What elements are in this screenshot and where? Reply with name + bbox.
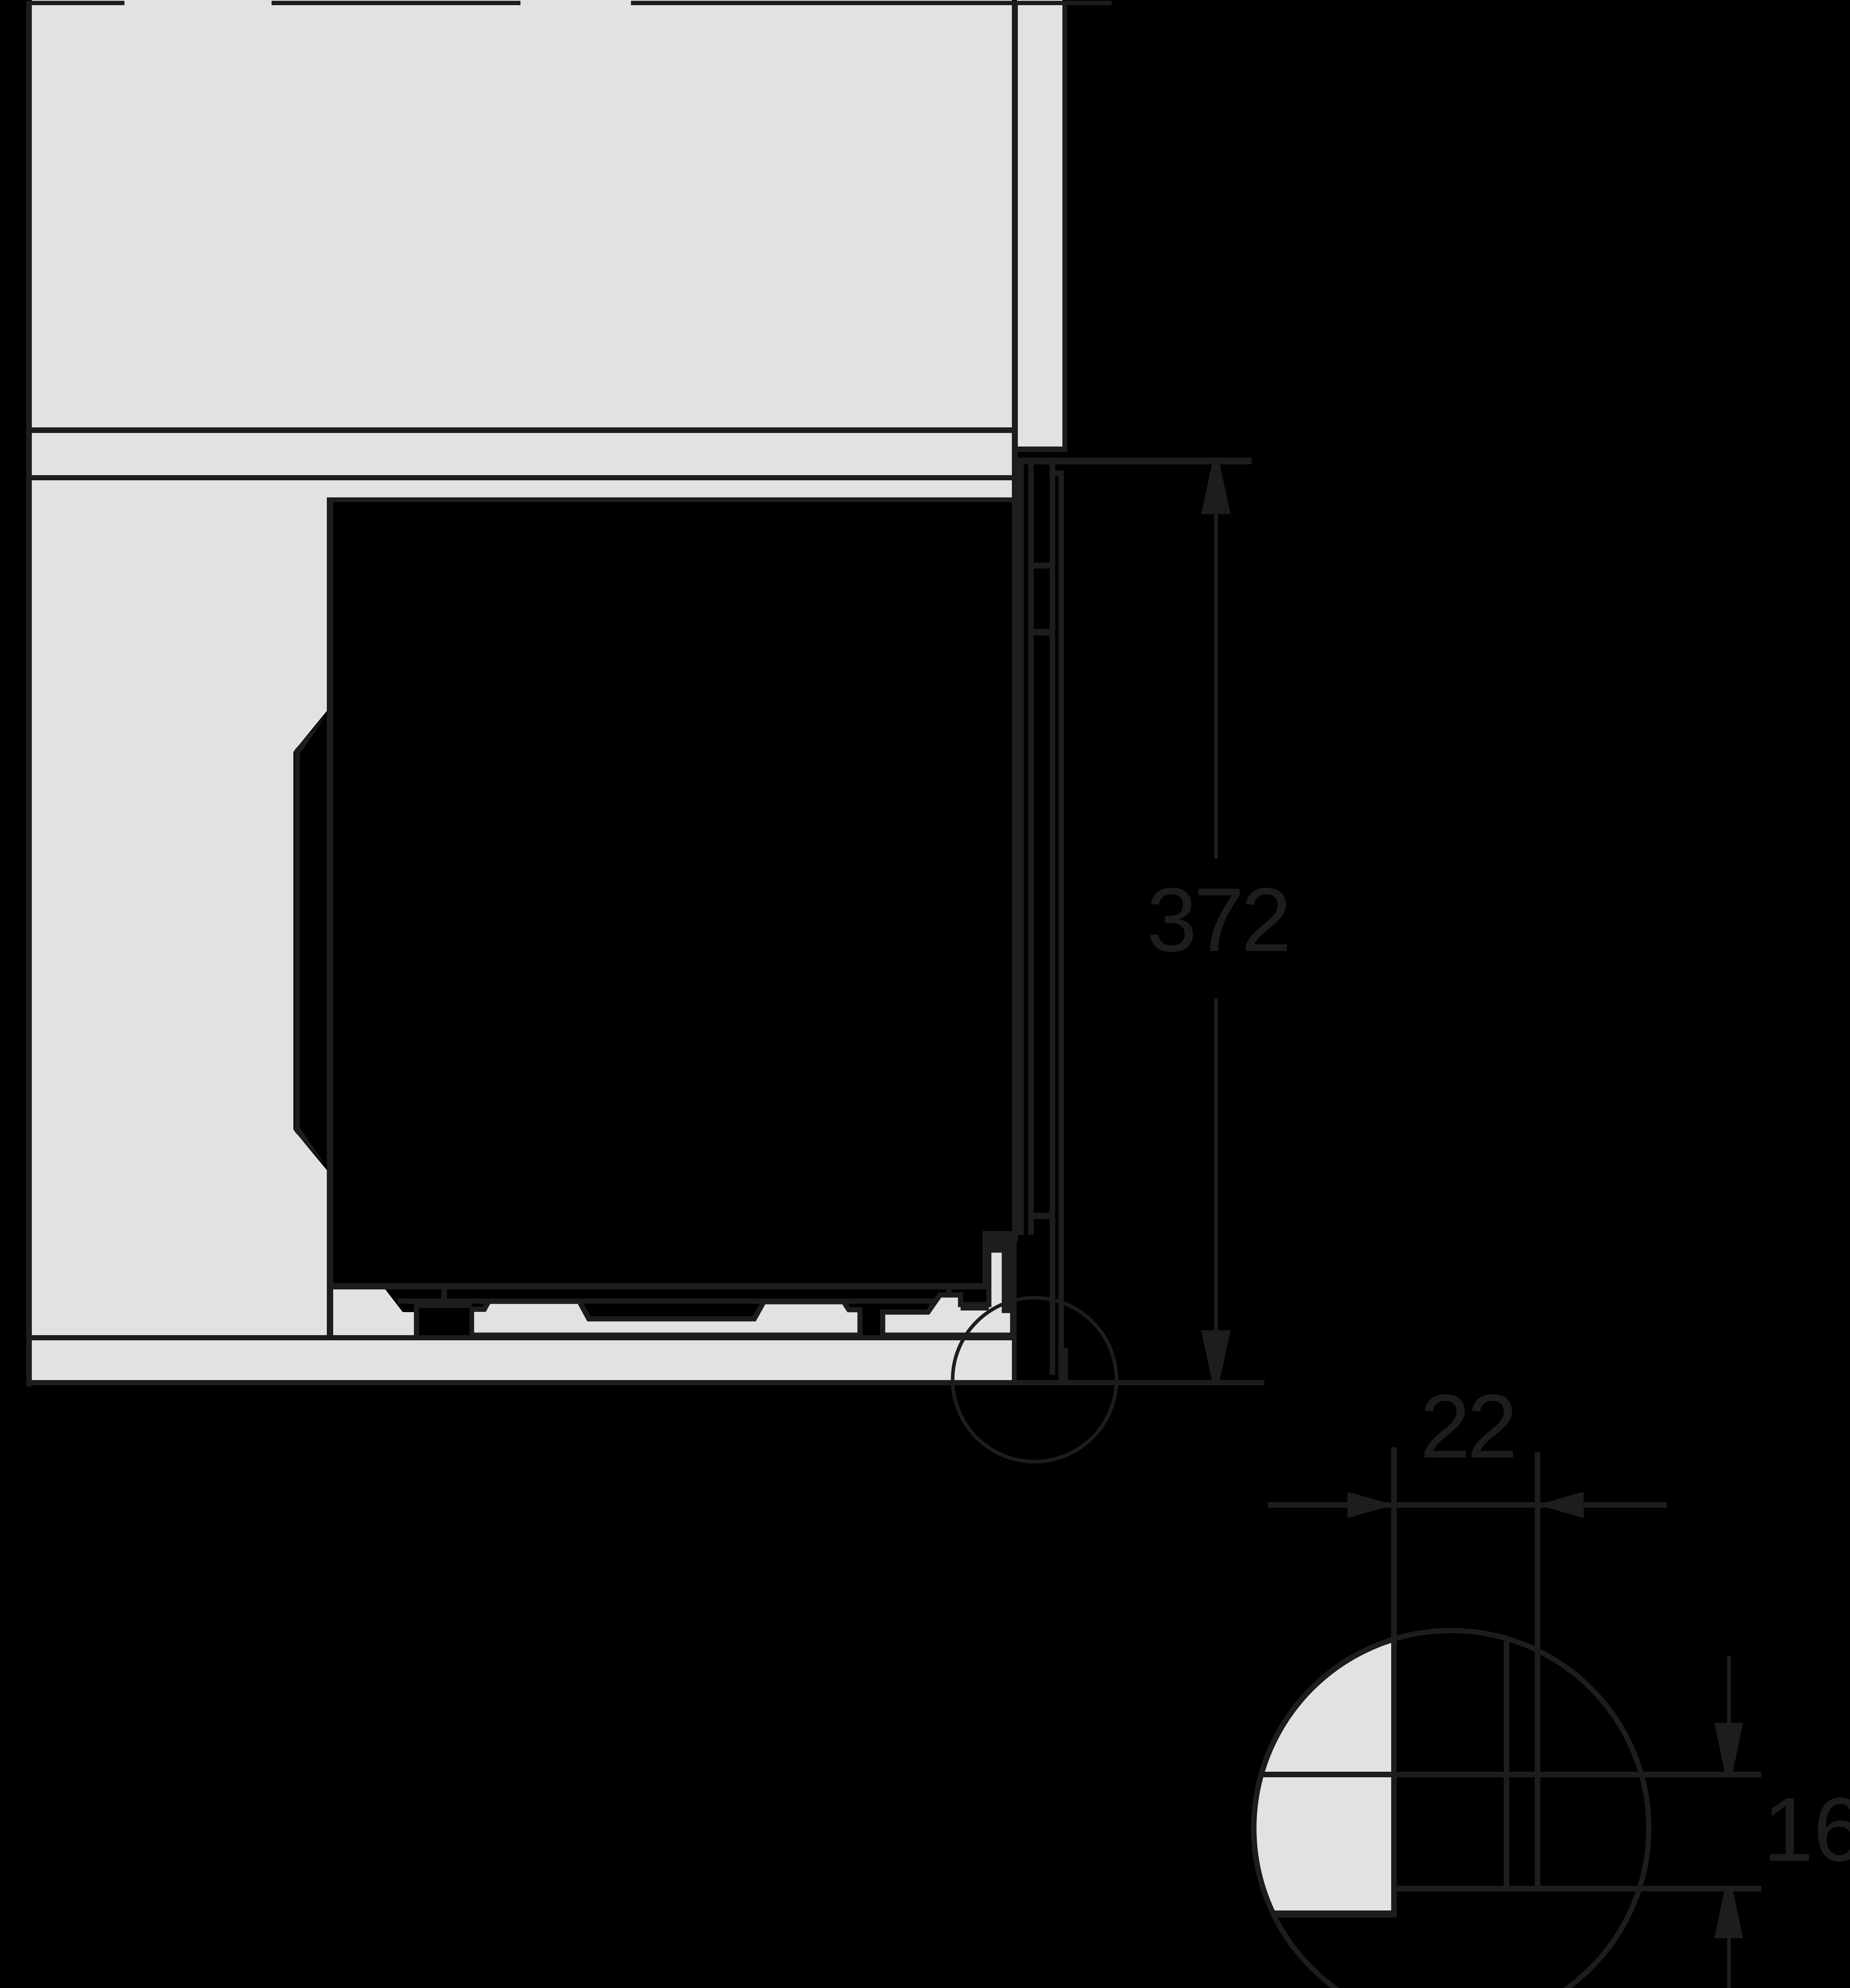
svg-text:16: 16 [1763, 1779, 1850, 1880]
svg-text:372: 372 [1147, 870, 1288, 971]
svg-text:22: 22 [1420, 1376, 1514, 1477]
